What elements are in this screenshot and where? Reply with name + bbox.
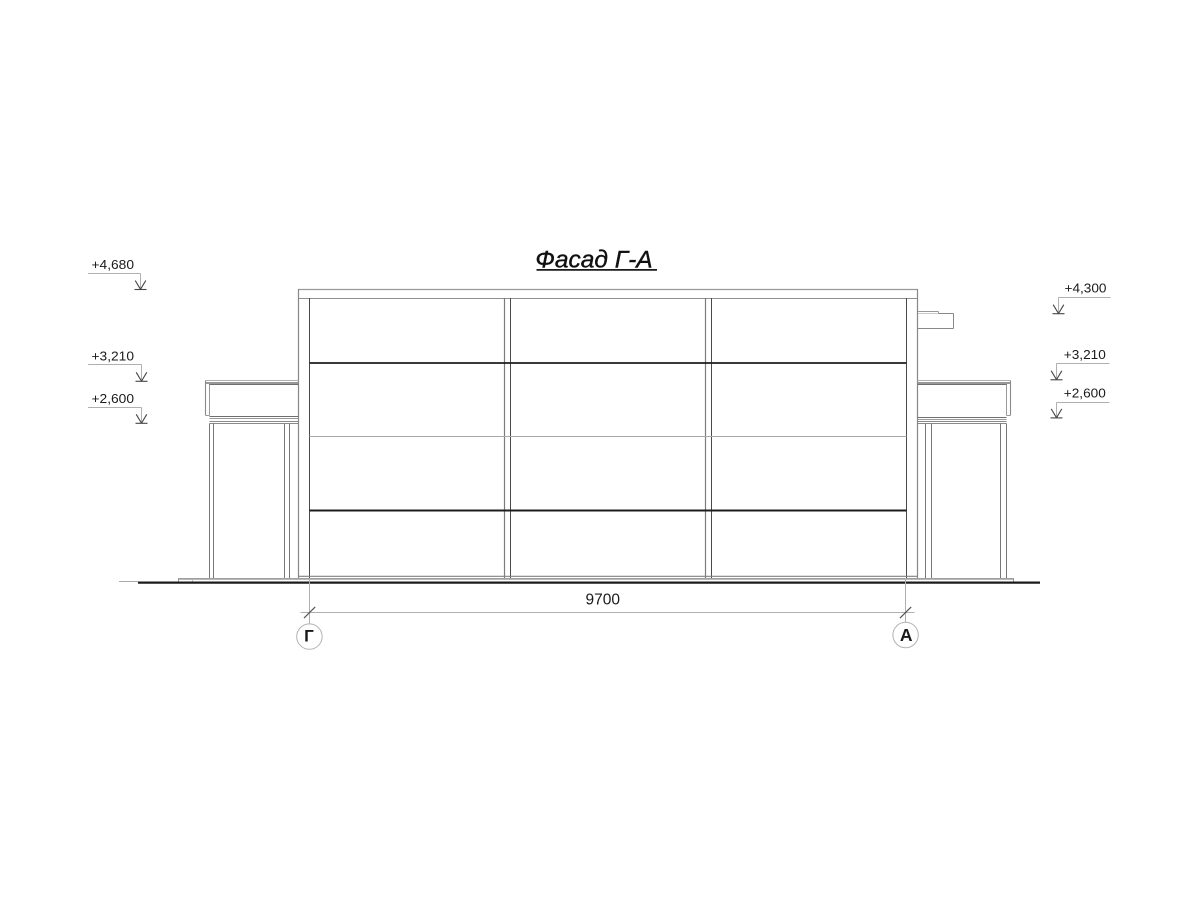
svg-text:А: А [900, 625, 913, 645]
svg-text:Г: Г [304, 626, 314, 645]
svg-text:+3,210: +3,210 [1064, 347, 1106, 362]
svg-text:+3,210: +3,210 [92, 348, 135, 363]
svg-text:+4,300: +4,300 [1065, 281, 1107, 296]
svg-text:+2,600: +2,600 [92, 391, 135, 406]
svg-text:+2,600: +2,600 [1064, 385, 1106, 400]
svg-text:9700: 9700 [586, 592, 621, 609]
svg-text:+4,680: +4,680 [92, 257, 135, 272]
